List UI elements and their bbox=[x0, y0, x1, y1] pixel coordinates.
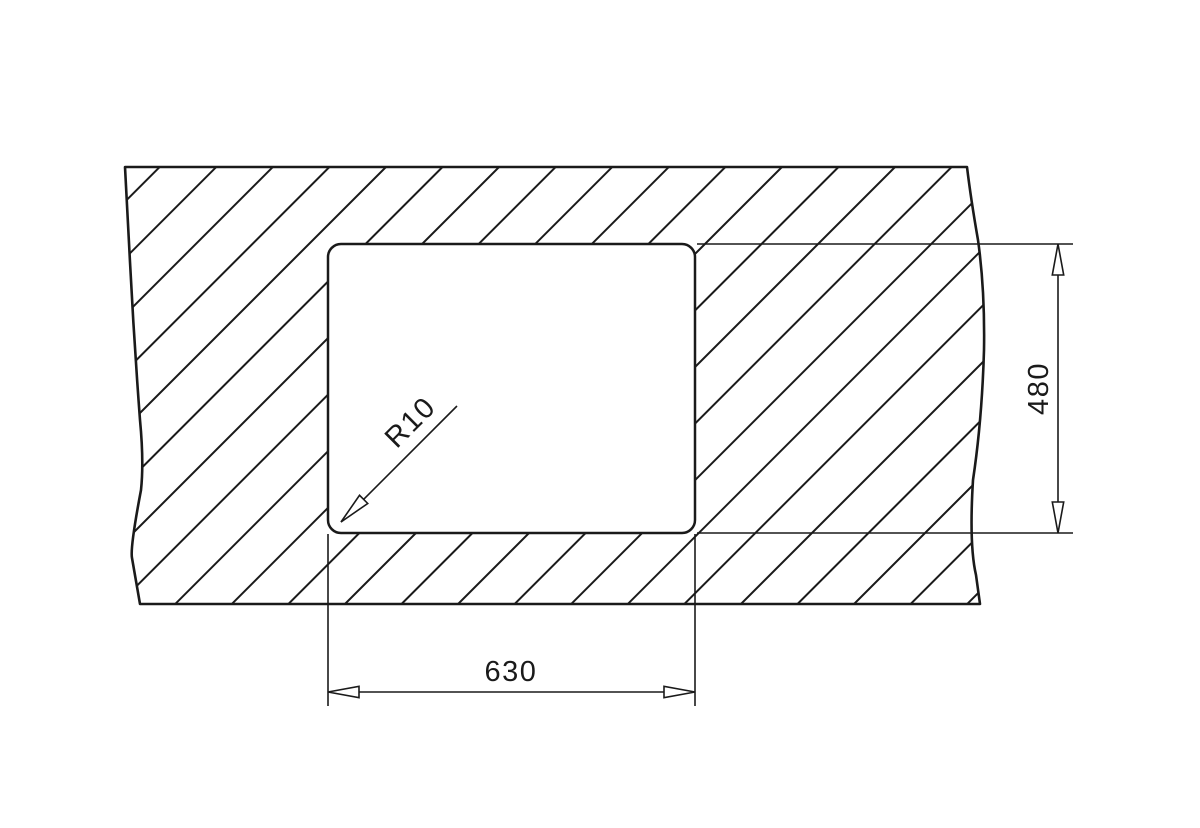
height-dimension-label: 480 bbox=[1023, 362, 1055, 415]
arrowhead-up-icon bbox=[1052, 244, 1063, 275]
sink-cutout-opening bbox=[328, 244, 695, 533]
cutout-dimension-drawing: 630 480 R10 bbox=[0, 0, 1200, 828]
drawing-page: 630 480 R10 bbox=[0, 0, 1200, 828]
arrowhead-left-icon bbox=[328, 686, 359, 697]
arrowhead-down-icon bbox=[1052, 502, 1063, 533]
width-dimension-label: 630 bbox=[485, 656, 538, 688]
arrowhead-right-icon bbox=[664, 686, 695, 697]
